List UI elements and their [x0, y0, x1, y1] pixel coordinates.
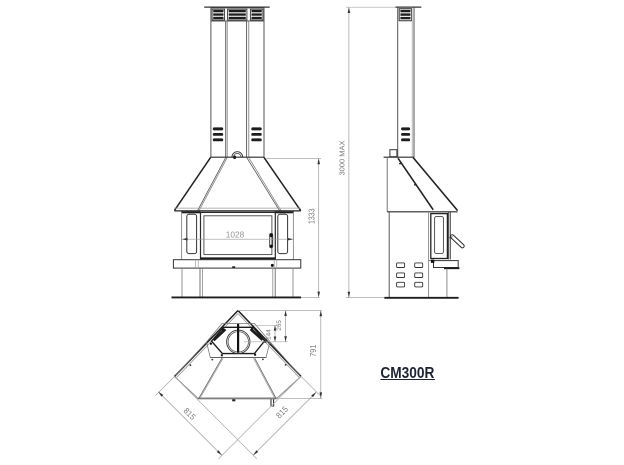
svg-text:1028: 1028 — [226, 230, 245, 240]
svg-text:144: 144 — [265, 329, 272, 340]
svg-text:1333: 1333 — [307, 208, 317, 224]
svg-text:791: 791 — [308, 344, 318, 357]
svg-text:3000 MAX: 3000 MAX — [338, 141, 347, 176]
svg-text:265: 265 — [276, 320, 283, 331]
